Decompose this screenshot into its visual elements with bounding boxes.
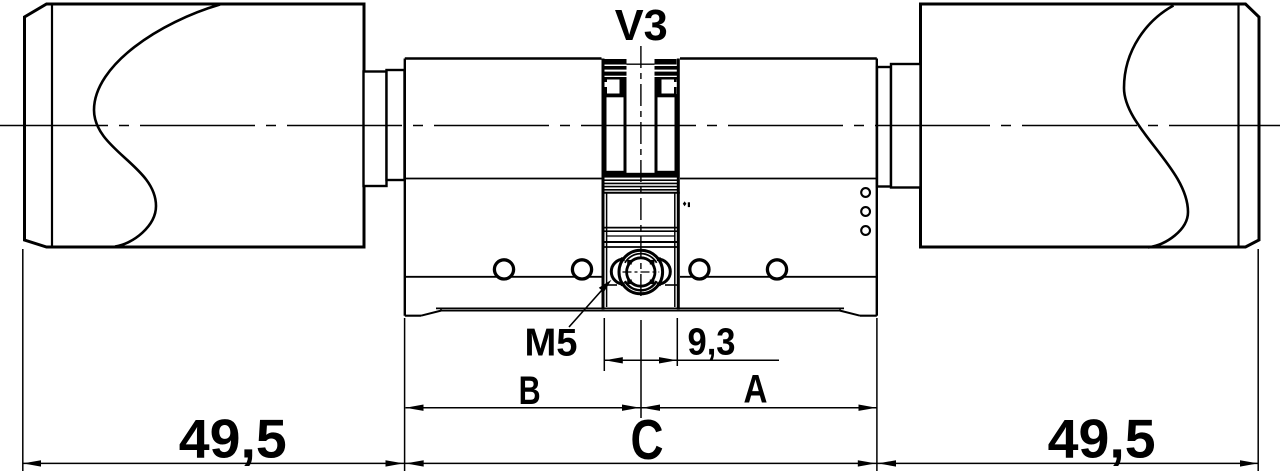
svg-text:49,5: 49,5	[1048, 408, 1156, 470]
svg-text:9,3: 9,3	[688, 322, 736, 364]
svg-text:M5: M5	[525, 322, 578, 365]
svg-text:V3: V3	[615, 1, 668, 50]
svg-text:C: C	[631, 408, 664, 472]
svg-text:49,5: 49,5	[179, 408, 287, 470]
svg-text:A: A	[744, 368, 768, 412]
svg-text:B: B	[519, 369, 541, 413]
